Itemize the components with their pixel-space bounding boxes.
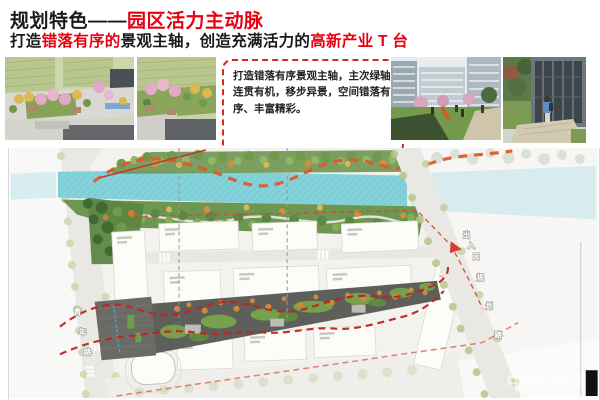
svg-text:划: 划 <box>486 301 493 311</box>
render-photo-lawn-graphic <box>391 57 501 140</box>
masterplan-thumbnail-left-graphic <box>5 57 134 140</box>
callout-text: 打造错落有序景观主轴，主次绿轴连贯有机，移步异景，空间错落有序、丰富精彩。 <box>233 70 391 115</box>
svg-text:中: 中 <box>506 371 526 394</box>
masterplan-thumbnail-mid <box>137 57 216 140</box>
masterplan: 出 入 口 规 划 路 青 年 路 中 <box>8 148 600 400</box>
render-photo-entrance <box>503 57 586 143</box>
svg-text:年: 年 <box>79 327 87 337</box>
svg-text:青: 青 <box>74 307 82 317</box>
entrance-char: 出 <box>463 229 470 239</box>
svg-text:路: 路 <box>84 346 92 356</box>
callout-box: 打造错落有序景观主轴，主次绿轴连贯有机，移步异景，空间错落有序、丰富精彩。 <box>222 59 404 155</box>
masterplan-thumbnail-mid-graphic <box>137 57 216 140</box>
masterplan-graphic: 出 入 口 规 划 路 青 年 路 中 <box>9 148 599 398</box>
svg-text:路: 路 <box>494 329 502 339</box>
slide: 规划特色——园区活力主动脉 打造错落有序的景观主轴，创造充满活力的高新产业 T … <box>0 0 600 400</box>
corner-mark <box>586 370 598 396</box>
entrance-char: 口 <box>473 252 480 261</box>
page-subtitle: 打造错落有序的景观主轴，创造充满活力的高新产业 T 台 <box>10 29 408 51</box>
svg-text:规: 规 <box>477 272 485 282</box>
render-photo-entrance-graphic <box>503 57 586 143</box>
render-photo-lawn <box>391 57 501 140</box>
masterplan-thumbnail-left <box>5 57 134 140</box>
entrance-char: 入 <box>467 241 476 250</box>
